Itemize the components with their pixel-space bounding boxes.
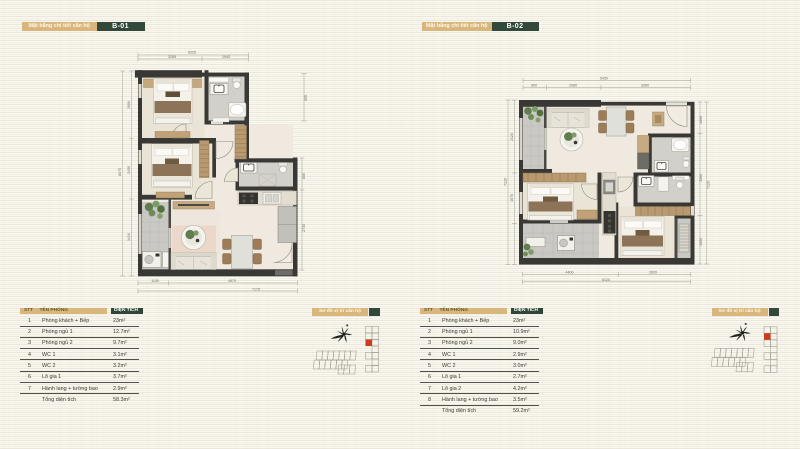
svg-text:1600: 1600 [699,116,703,124]
svg-text:2900: 2900 [127,101,131,109]
svg-text:1650: 1650 [699,238,703,246]
svg-text:995: 995 [304,95,308,101]
svg-text:900: 900 [531,83,537,87]
svg-text:7120: 7120 [706,181,710,189]
svg-text:2450: 2450 [127,166,131,174]
svg-text:7175: 7175 [252,287,260,291]
svg-text:5225: 5225 [188,51,196,55]
svg-text:5450: 5450 [600,76,608,80]
svg-text:1100: 1100 [151,279,159,283]
svg-text:8120: 8120 [602,278,610,282]
svg-text:1570: 1570 [510,194,514,202]
svg-text:800: 800 [302,173,306,179]
svg-text:7120: 7120 [504,178,508,186]
svg-text:4400: 4400 [566,270,574,274]
svg-text:3360: 3360 [641,83,649,87]
svg-text:1940: 1940 [222,55,230,59]
svg-text:3285: 3285 [168,55,176,59]
svg-text:4670: 4670 [228,279,236,283]
svg-text:3360: 3360 [699,174,703,182]
svg-text:8075: 8075 [118,168,122,176]
svg-text:2620: 2620 [649,270,657,274]
svg-text:2120: 2120 [510,133,514,141]
svg-text:2730: 2730 [302,224,306,232]
svg-text:2080: 2080 [569,83,577,87]
svg-text:3410: 3410 [127,233,131,241]
